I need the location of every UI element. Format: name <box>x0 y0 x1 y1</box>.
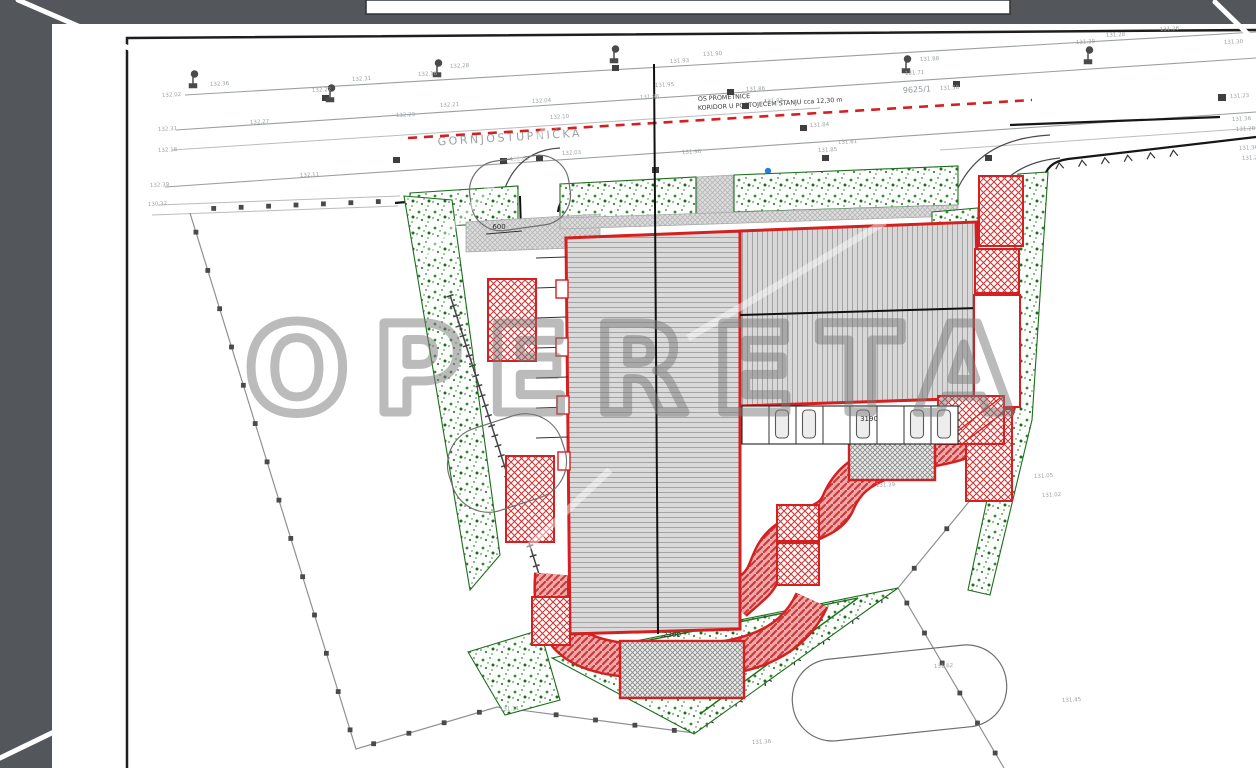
elevation-label: 131.36 <box>1239 145 1256 152</box>
fence-post <box>277 498 282 503</box>
fence-post <box>922 631 927 636</box>
elevation-label: 132.27 <box>250 119 270 126</box>
fence-post <box>294 203 299 208</box>
elevation-label: 132.18 <box>158 147 178 154</box>
scanned-site-plan-page: GORNJOSTUPNIČKA OS PROMETNICE KORIDOR U … <box>0 0 1256 768</box>
fence-post <box>672 728 677 733</box>
site-plan-svg: GORNJOSTUPNIČKA OS PROMETNICE KORIDOR U … <box>0 0 1256 768</box>
elevation-label: 131.27 <box>1242 155 1256 162</box>
south-parking-checker <box>620 641 744 698</box>
fence-post <box>211 206 216 211</box>
parking-block <box>975 249 1019 293</box>
elevation-label: 131.36 <box>1232 116 1252 123</box>
fence-post <box>265 459 270 464</box>
elevation-label: 131.86 <box>746 86 766 93</box>
elevation-label: 132.03 <box>562 150 582 157</box>
elevation-label: 131.39 <box>876 482 896 489</box>
fence-post <box>957 691 962 696</box>
elevation-label: 131.05 <box>1034 473 1054 480</box>
elevation-label: 131.26 <box>1160 26 1180 33</box>
parking-block <box>979 176 1023 246</box>
fence-post <box>194 230 199 235</box>
elevation-label: 132.22 <box>312 87 332 94</box>
elevation-label: 131.62 <box>934 663 954 670</box>
fence-post <box>442 720 447 725</box>
fence-post <box>912 566 917 571</box>
fence-post <box>554 712 559 717</box>
parcel-number-label: 9625/1 <box>903 84 932 95</box>
elevation-label: 131.93 <box>670 58 690 65</box>
elevation-label: 131.30 <box>1224 39 1244 46</box>
elevation-label: 131.88 <box>920 56 940 63</box>
elevation-label: 131.81 <box>838 139 858 146</box>
elevation-label: 132.10 <box>550 114 570 121</box>
fence-post <box>477 710 482 715</box>
elevation-label: 131.85 <box>818 147 838 154</box>
fence-post <box>371 741 376 746</box>
elevation-label: 130.32 <box>148 201 168 208</box>
elevation-label: 131.23 <box>1230 93 1250 100</box>
fence-post <box>239 205 244 210</box>
elevation-label: 132.39 <box>150 182 170 189</box>
fence-post <box>376 199 381 204</box>
elevation-label: 131.96 <box>682 149 702 156</box>
parking-block <box>777 543 819 585</box>
elevation-label: 132.11 <box>300 172 320 179</box>
fence-post <box>288 536 293 541</box>
elevation-label: 132.04 <box>532 98 552 105</box>
parking-block <box>532 597 570 645</box>
fence-post <box>348 200 353 205</box>
elevation-label: 132.36 <box>210 81 230 88</box>
dim-entrance: 600 <box>492 223 505 231</box>
fence-post <box>266 204 271 209</box>
fence-post <box>300 574 305 579</box>
elevation-label: 132.31 <box>352 76 372 83</box>
elevation-label: 132.21 <box>440 102 460 109</box>
fence-post <box>633 723 638 728</box>
fence-post <box>348 727 353 732</box>
fence-post <box>406 731 411 736</box>
fence-post <box>217 306 222 311</box>
elevation-label: 131.28 <box>1106 32 1126 39</box>
walkway <box>697 175 733 215</box>
parking-block-checker <box>849 442 935 480</box>
watermark-text: OPERETA <box>245 299 1035 441</box>
elevation-label: 131.45 <box>1062 697 1082 704</box>
elevation-label: 131.38 <box>1076 39 1096 46</box>
fence-post <box>312 613 317 618</box>
hedge-strip-2 <box>560 177 696 220</box>
fence-post <box>205 268 210 273</box>
elevation-label: 131.90 <box>703 51 723 58</box>
elevation-label: 132.16 <box>418 71 438 78</box>
elevation-label: 132.02 <box>162 92 182 99</box>
fence-post <box>993 751 998 756</box>
elevation-label: 131.36 <box>752 739 772 746</box>
fence-post <box>229 345 234 350</box>
fence-post <box>944 526 949 531</box>
fence-post <box>324 651 329 656</box>
surround-left-band <box>0 0 52 768</box>
elevation-label: 131.71 <box>905 70 925 77</box>
elevation-label: 131.02 <box>1042 492 1062 499</box>
fence-post <box>321 201 326 206</box>
top-white-bar <box>366 0 1010 14</box>
elevation-label: 131.58 <box>940 85 960 92</box>
fence-post <box>904 601 909 606</box>
fence-post <box>593 718 598 723</box>
elevation-label: 131.98 <box>640 94 660 101</box>
elevation-label: 131.83 <box>764 98 784 105</box>
elevation-label: 131.95 <box>655 82 675 89</box>
parking-block <box>777 505 819 541</box>
elevation-label: 131.84 <box>810 122 830 129</box>
elevation-label: 131.28 <box>1236 126 1256 133</box>
dim-building-front: 2300 <box>663 631 681 639</box>
elevation-label: 132.28 <box>450 63 470 70</box>
elevation-label: 132.31 <box>158 126 178 133</box>
elevation-label: 132.23 <box>396 112 416 119</box>
fence-post <box>336 689 341 694</box>
elevation-label: 131.11 <box>500 706 520 713</box>
